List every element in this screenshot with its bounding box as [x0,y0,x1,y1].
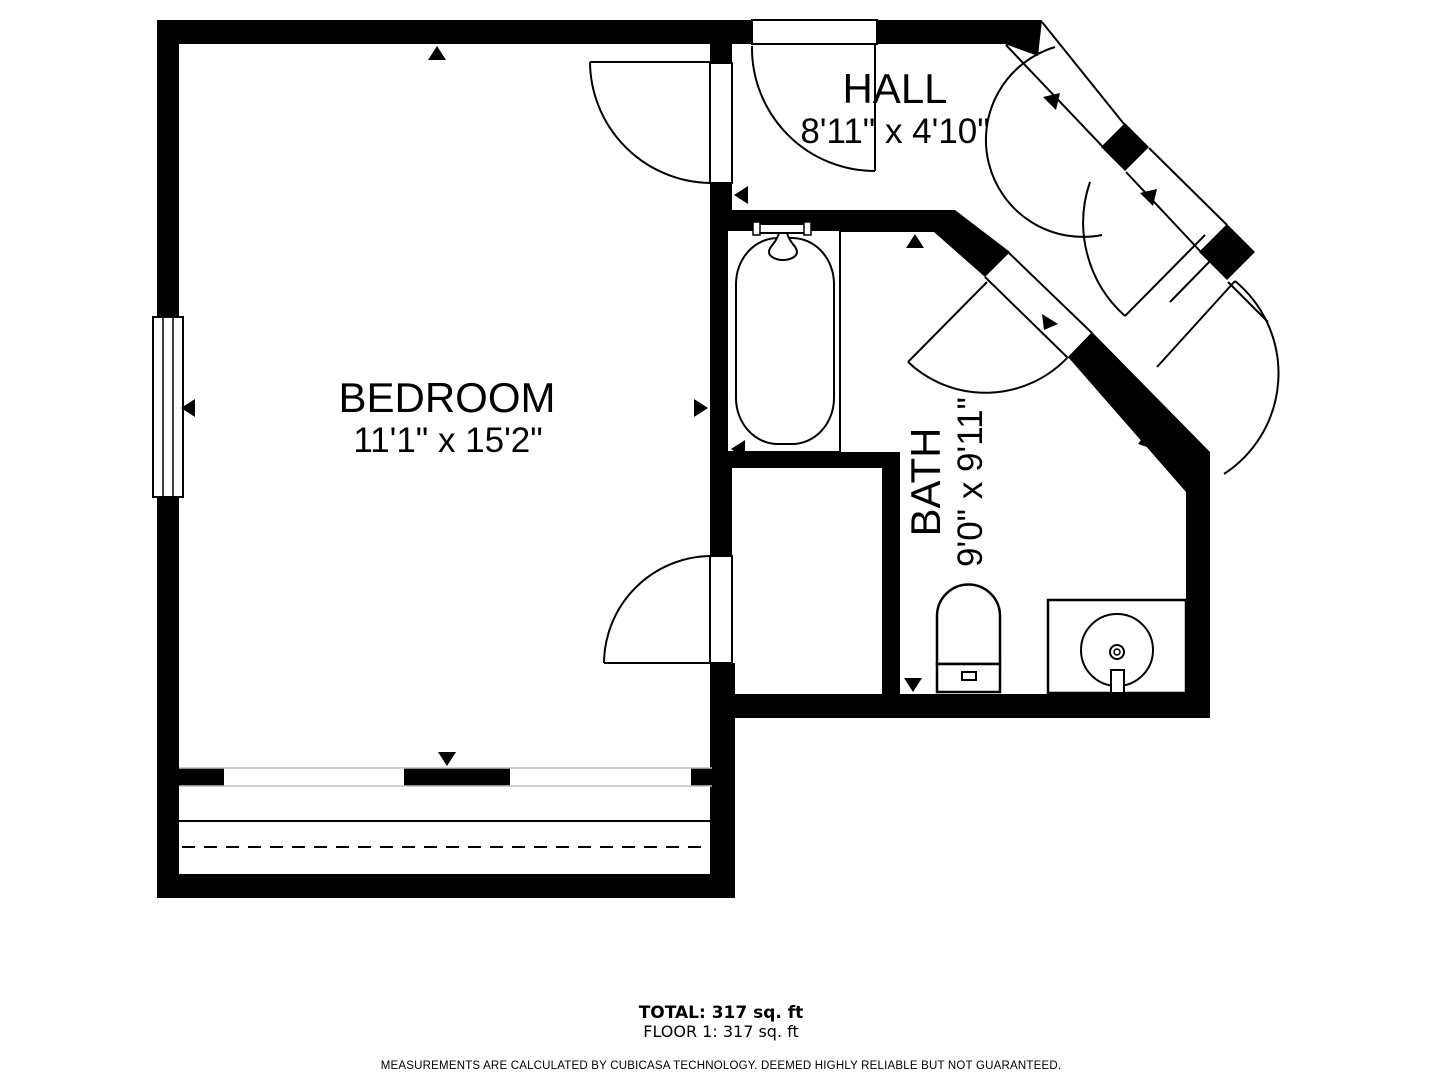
wall-bedroom-right-a [710,20,732,63]
floor-plan-drawing: BEDROOM 11'1" x 15'2" HALL 8'11" x 4'10"… [0,0,1440,1080]
arrow-bedroom-right-icon [694,399,708,417]
toilet-icon [937,585,1000,692]
hall-top-door-opening [752,20,877,44]
total-area-text: TOTAL: 317 sq. ft [639,1003,804,1023]
hall-label: HALL [842,65,947,112]
arrow-hall-left-icon [734,186,748,204]
bath-label: BATH [902,428,949,537]
summary-block: TOTAL: 317 sq. ft FLOOR 1: 317 sq. ft ME… [381,1003,1061,1072]
arrow-bath-bottom-icon [904,678,922,692]
wall-top-left [157,20,752,44]
bedroom-top-door-opening [710,63,732,183]
walls [157,20,1255,898]
wall-closet-top [710,452,900,468]
arrow-bath-top-icon [906,234,924,248]
wall-window-band-2 [404,768,510,786]
wall-window-band-3 [691,768,712,786]
diagonal-opening-outlines [985,22,1268,358]
hall-dimensions: 8'11" x 4'10" [800,112,989,151]
closet-door-opening [710,556,732,663]
wall-pillar-2 [1199,224,1255,280]
bedroom-dimensions: 11'1" x 15'2" [353,421,542,460]
balcony-lines [179,821,710,847]
measure-arrows [181,46,1157,766]
bedroom-top-door [590,62,710,183]
disclaimer-text: MEASUREMENTS ARE CALCULATED BY CUBICASA … [381,1060,1061,1072]
wall-closet-right [882,468,900,694]
wall-top-right [877,20,1007,44]
bath-door [908,282,1068,393]
floor-area-text: FLOOR 1: 317 sq. ft [643,1022,799,1041]
closet-door [604,556,710,663]
hall-diagonal-door-2 [1083,182,1205,316]
window-left [153,317,183,497]
floor-plan-page: BEDROOM 11'1" x 15'2" HALL 8'11" x 4'10"… [0,0,1440,1080]
bathtub-icon [727,222,840,452]
wall-window-band-1 [179,768,224,786]
bedroom-label: BEDROOM [338,374,555,421]
arrow-hall-diagonal-icon [1043,93,1060,110]
wall-pillar-1 [1101,123,1149,171]
wall-bottom [157,874,735,898]
bath-dimensions: 9'0" x 9'11" [951,397,990,567]
arrow-bedroom-top-icon [428,46,446,60]
wall-left-lower [157,495,179,898]
arrow-bedroom-bottom-icon [438,752,456,766]
arrow-bath-doorway-icon [1042,314,1058,330]
sink-vanity-icon [1048,600,1186,693]
wall-left-upper [157,20,179,318]
